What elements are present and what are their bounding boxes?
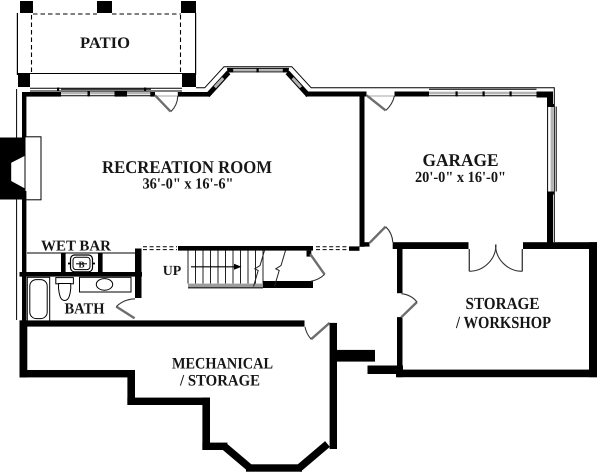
svg-text:MECHANICAL: MECHANICAL xyxy=(172,356,273,373)
svg-text:20'-0" x 16'-0": 20'-0" x 16'-0" xyxy=(415,169,506,186)
svg-text:/ WORKSHOP: / WORKSHOP xyxy=(455,313,551,332)
svg-text:BATH: BATH xyxy=(65,301,105,318)
svg-text:RECREATION ROOM: RECREATION ROOM xyxy=(102,157,272,177)
svg-text:/ STORAGE: / STORAGE xyxy=(179,373,260,390)
svg-text:UP: UP xyxy=(163,264,182,279)
svg-text:STORAGE: STORAGE xyxy=(466,294,540,313)
svg-text:GARAGE: GARAGE xyxy=(423,150,499,170)
svg-text:WET BAR: WET BAR xyxy=(41,239,111,255)
svg-text:PATIO: PATIO xyxy=(80,35,130,52)
svg-text:36'-0" x 16'-6": 36'-0" x 16'-6" xyxy=(143,176,234,193)
svg-text:B: B xyxy=(78,260,84,270)
